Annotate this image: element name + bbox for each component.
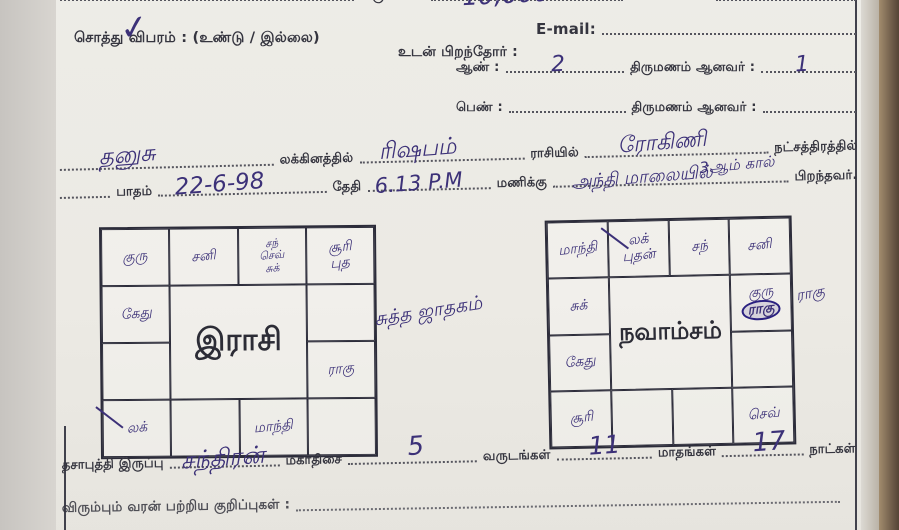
scan-left-margin	[0, 0, 56, 530]
male-label: ஆண் :	[456, 60, 500, 76]
planet-label: சந்	[690, 239, 708, 256]
chart-cell-r2c4	[306, 284, 375, 342]
chart-cell-r3c1	[102, 343, 171, 401]
navamsam-chart-title: நவாம்சம்	[609, 275, 733, 390]
planet-label: புதன்	[621, 247, 656, 266]
chart-cell-r2c4: குருராகு	[730, 274, 792, 332]
dotted-line: ரிஷபம்	[359, 156, 524, 164]
days-value-handwriting: 17	[752, 426, 787, 458]
dotted-line: 5	[348, 458, 477, 465]
rasi-label: ராசியில்	[530, 145, 579, 162]
scan-background-strip	[879, 0, 899, 530]
lagna-value-handwriting: தனுசு	[97, 140, 156, 173]
chart-cell-r1c4: சூரிபுத	[306, 227, 375, 285]
born-label: பிறந்தவர்.	[794, 168, 857, 185]
chart-cell-r4c4	[307, 398, 376, 456]
planet-label: லக்	[126, 420, 148, 438]
chart-cell-r3c4	[731, 330, 793, 388]
planet-label: சூரி	[569, 410, 594, 428]
dotted-line: 1	[761, 69, 856, 73]
chart-cell-r1c2: லக்புதன்	[607, 220, 669, 278]
chart-cell-r2c1: சுக்	[548, 278, 610, 336]
chart-cell-r3c4: ராகு	[307, 341, 376, 399]
male-count-handwriting: 2	[550, 52, 565, 78]
dotted-line: 17	[722, 451, 803, 457]
planet-label: குரு	[122, 248, 149, 266]
rasi-chart-title: இராசி	[170, 284, 307, 399]
tick-mark-handwriting: ✓	[117, 6, 151, 50]
female-label: பெண் :	[456, 100, 503, 116]
days-label: நாட்கள்	[809, 441, 856, 458]
dotted-line	[60, 0, 354, 1]
male-row: ஆண் : 2 திருமணம் ஆனவர் : 1	[456, 60, 858, 76]
planet-label: கேது	[120, 305, 152, 324]
navamsam-chart: நவாம்சம் மாந்திலக்புதன்சந்சனிசுக்குருராக…	[545, 215, 797, 449]
male-married-count-handwriting: 1	[795, 52, 810, 78]
years-label: வருடங்கள்	[483, 448, 551, 465]
scanned-horoscope-form: வருமானம் 10,000 போன் எண் : சொத்து விபரம்…	[0, 0, 899, 530]
dotted-line: 6.13 P.M	[367, 185, 490, 192]
months-label: மாதங்கள்	[658, 444, 716, 461]
rasi-chart: இராசி குருசனிசந்செவ்சுக்சூரிபுதகேதுராகுல…	[99, 225, 378, 459]
planet-label: சுக்	[569, 298, 589, 316]
planet-label: கேது	[564, 353, 597, 372]
dasa-label: தசாபுத்தி இருப்பு	[62, 456, 164, 474]
page-edge	[861, 0, 879, 530]
planet-label: ராகு	[327, 361, 355, 379]
female-row: பெண் : திருமணம் ஆனவர் :	[456, 100, 858, 116]
chart-cell-r1c4: சனி	[729, 217, 791, 275]
dotted-line	[60, 194, 111, 199]
birth-date-handwriting: 22-6-98	[174, 168, 265, 201]
dotted-line	[763, 109, 856, 113]
time-label: மணிக்கு	[496, 175, 547, 192]
notes-label: விரும்பும் வரன் பற்றிய குறிப்புகள் :	[62, 496, 291, 518]
dotted-line: 22-6-98	[158, 189, 326, 197]
planet-label: சுக்	[264, 262, 279, 276]
planet-label: சனி	[747, 237, 773, 255]
padam-label: பாதம்	[116, 184, 152, 201]
income-label: வருமானம்	[360, 0, 426, 4]
planet-label: மாந்தி	[253, 418, 293, 437]
chart-cell-r4c2	[611, 389, 673, 447]
chart-cell-r2c1: கேது	[102, 286, 171, 344]
dasa-value-handwriting: சந்திரன்	[180, 441, 266, 478]
dotted-line: 2	[506, 69, 625, 73]
years-value-handwriting: 5	[406, 431, 425, 462]
planet-label: மாந்தி	[557, 240, 598, 260]
chart-cell-r1c1: குரு	[101, 229, 170, 287]
planet-label: புத	[330, 255, 351, 272]
date-label: தேதி	[332, 179, 361, 196]
chart-cell-r4c3	[672, 387, 734, 445]
dotted-line	[716, 0, 856, 1]
chart-cell-r1c1: மாந்தி	[547, 221, 609, 279]
chart-cell-r1c3: சந்	[668, 219, 730, 277]
email-label: E-mail:	[536, 20, 596, 38]
chart-cell-r4c1: லக்	[103, 400, 172, 458]
property-row: சொத்து விபரம் : (உண்டு / இல்லை)	[74, 30, 320, 48]
mahadasa-label: மகாதிசை	[285, 452, 342, 469]
planet-label: சனி	[191, 248, 217, 266]
chart-cell-r1c2: சனி	[169, 228, 238, 286]
male-married-label: திருமணம் ஆனவர் :	[630, 60, 755, 76]
income-row: வருமானம் 10,000 போன் எண் :	[58, 0, 858, 4]
female-married-label: திருமணம் ஆனவர் :	[632, 100, 757, 116]
planet-label: செவ்	[747, 405, 781, 424]
rasi-value-handwriting: ரிஷபம்	[378, 133, 458, 168]
dotted-line: 11	[556, 455, 652, 461]
lagna-label: லக்கினத்தில்	[279, 151, 353, 169]
chart-cell-r3c1: கேது	[549, 334, 611, 392]
chart-cell-r1c3: சந்செவ்சுக்	[238, 227, 307, 285]
email-row: E-mail:	[536, 20, 858, 38]
months-value-handwriting: 11	[588, 430, 622, 461]
planet-label-circled: ராகு	[741, 298, 782, 322]
star-value-handwriting: ரோகிணி	[617, 127, 708, 162]
phone-label: போன் எண் :	[629, 0, 710, 4]
property-label: சொத்து விபரம் : (உண்டு / இல்லை)	[74, 30, 320, 48]
dotted-line	[509, 109, 626, 113]
dotted-line: 10,000	[431, 0, 623, 1]
dotted-line	[602, 31, 856, 35]
dotted-line: சந்திரன்	[170, 462, 280, 468]
star-label: நட்சத்திரத்தில்	[774, 138, 858, 156]
